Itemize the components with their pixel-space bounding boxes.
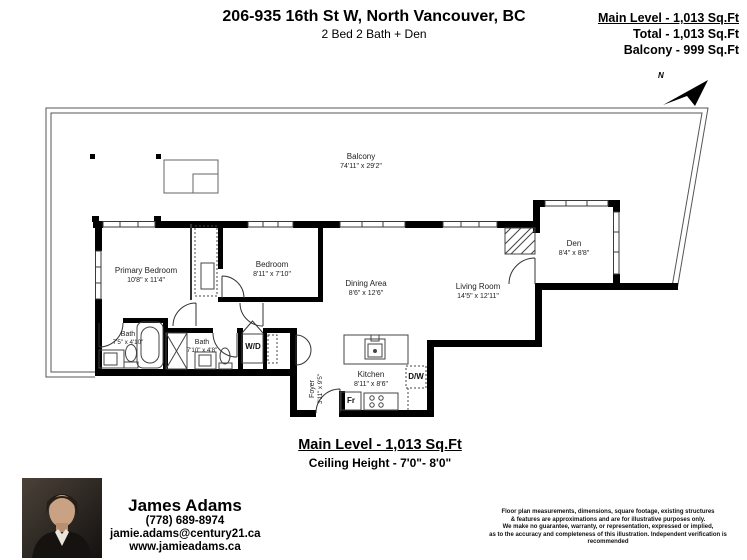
laundry-bifold-door	[242, 321, 263, 333]
agent-headshot-image	[22, 478, 102, 558]
closet-dresser	[201, 263, 214, 289]
den-door	[509, 258, 535, 284]
dishwasher-label: D/W	[408, 372, 424, 381]
bedroom-door	[222, 276, 244, 298]
room-label-primary-bedroom: Primary Bedroom 10'8" x 11'4"	[115, 266, 177, 285]
footer-level-label: Main Level - 1,013 Sq.Ft	[298, 437, 462, 453]
room-label-bath-main: Bath 7'10" x 4'8"	[187, 339, 218, 355]
balcony-planter	[164, 160, 218, 193]
toilet-tank	[124, 362, 138, 368]
room-label-balcony: Balcony 74'11" x 29'2"	[340, 152, 382, 171]
agent-website: www.jamieadams.ca	[110, 541, 260, 554]
washer-dryer-label: W/D	[245, 342, 261, 351]
balcony-column	[90, 154, 95, 159]
room-label-den: Den 8'4" x 8'8"	[559, 239, 590, 258]
primary-bedroom-door	[173, 303, 196, 326]
foyer-closet-doors	[296, 335, 311, 365]
balcony-column	[156, 154, 161, 159]
balcony-planter-inner	[193, 174, 218, 193]
disclaimer: Floor plan measurements, dimensions, squ…	[468, 509, 747, 547]
agent-photo	[22, 478, 102, 558]
footer-ceiling-label: Ceiling Height - 7'0"- 8'0"	[309, 456, 451, 470]
agent-name: James Adams	[110, 496, 260, 515]
balcony-objects	[90, 154, 218, 193]
room-label-kitchen: Kitchen 8'11" x 8'6"	[354, 370, 388, 389]
agent-phone: (778) 689-8974	[110, 515, 260, 528]
closet-shelves	[268, 335, 277, 363]
room-label-bath-primary: Bath 7'5" x 4'10"	[113, 331, 144, 347]
agent-info: James Adams (778) 689-8974 jamie.adams@c…	[110, 496, 260, 554]
north-arrow-icon	[663, 80, 708, 106]
room-label-dining-area: Dining Area 8'6" x 12'6"	[345, 279, 386, 298]
toilet	[126, 345, 137, 362]
room-label-living-room: Living Room 14'5" x 12'11"	[456, 282, 500, 301]
shaft-hatch	[505, 228, 535, 254]
floorplan-flyer: 206-935 16th St W, North Vancouver, BC 2…	[0, 0, 747, 560]
interior-walls	[95, 222, 345, 417]
fridge-label: Fr	[347, 396, 355, 405]
room-label-bedroom: Bedroom 8'11" x 7'10"	[253, 260, 291, 279]
agent-email: jamie.adams@century21.ca	[110, 528, 260, 541]
room-label-foyer: Foyer 3'11" x 9'5"	[309, 374, 325, 404]
